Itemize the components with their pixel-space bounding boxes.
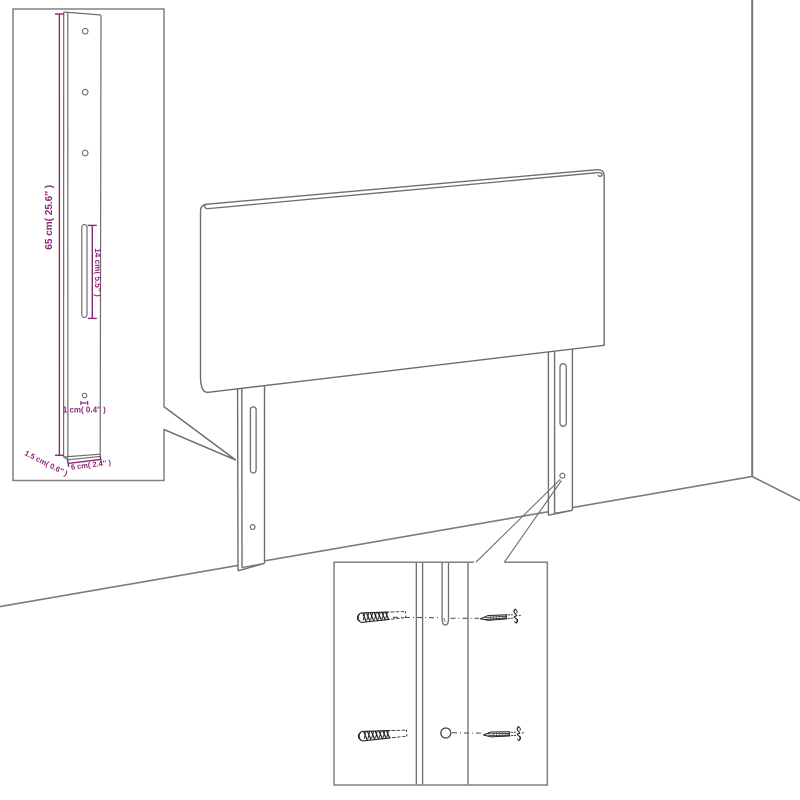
svg-text:1 cm( 0.4″ ): 1 cm( 0.4″ ) xyxy=(63,405,106,414)
svg-text:65 cm( 25.6″ ): 65 cm( 25.6″ ) xyxy=(44,185,55,250)
svg-text:14 cm( 5.5″ ): 14 cm( 5.5″ ) xyxy=(93,248,102,297)
